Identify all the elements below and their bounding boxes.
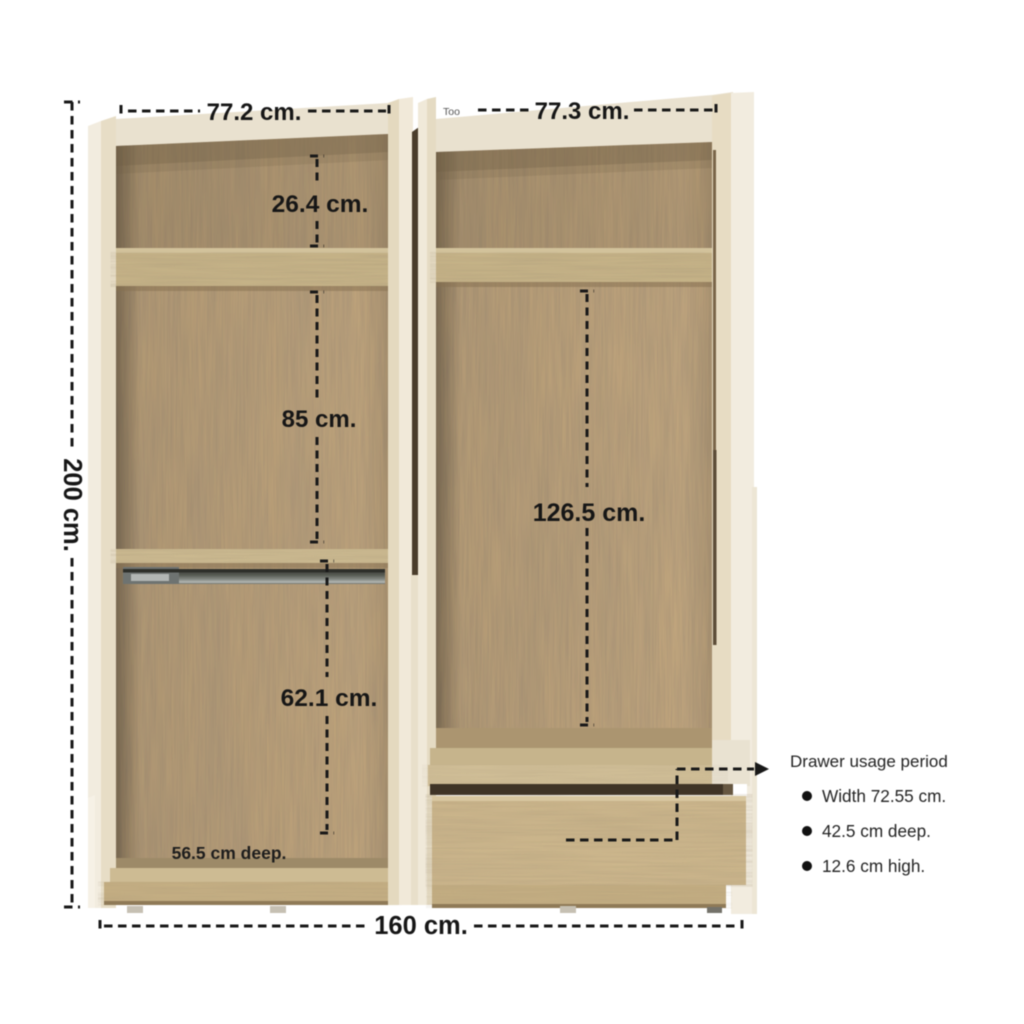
svg-text:200 cm.: 200 cm. xyxy=(58,458,86,552)
svg-text:26.4 cm.: 26.4 cm. xyxy=(272,191,369,218)
svg-text:Too: Too xyxy=(443,106,460,118)
svg-text:85 cm.: 85 cm. xyxy=(282,406,357,433)
svg-text:77.2 cm.: 77.2 cm. xyxy=(207,99,302,126)
svg-text:62.1 cm.: 62.1 cm. xyxy=(281,685,378,712)
svg-text:77.3 cm.: 77.3 cm. xyxy=(535,98,630,125)
svg-text:Drawer usage period: Drawer usage period xyxy=(790,752,948,771)
svg-text:160 cm.: 160 cm. xyxy=(374,912,468,940)
svg-text:Width 72.55 cm.: Width 72.55 cm. xyxy=(822,786,946,806)
svg-text:12.6 cm high.: 12.6 cm high. xyxy=(822,856,925,876)
svg-text:42.5 cm deep.: 42.5 cm deep. xyxy=(822,821,931,841)
svg-text:126.5 cm.: 126.5 cm. xyxy=(533,499,646,527)
svg-text:56.5 cm deep.: 56.5 cm deep. xyxy=(172,843,287,863)
